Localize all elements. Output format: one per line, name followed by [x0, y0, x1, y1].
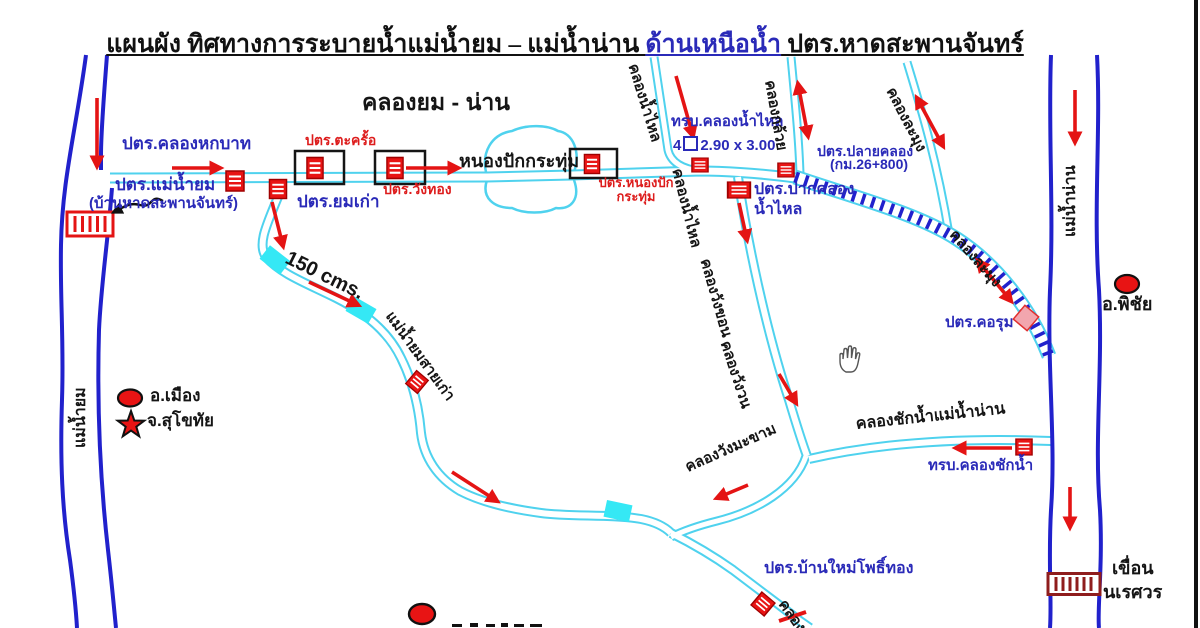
phichai-district-dot: [1115, 275, 1139, 293]
legend-district-dot: [118, 390, 142, 407]
canal-network-diagram[interactable]: แผนผัง ทิศทางการระบายน้ำแม่น้ำยม – แม่น้…: [0, 0, 1200, 628]
map-right-frame-border: [1194, 0, 1198, 628]
label-ptr-nong-pak-line2: กระทุ่ม: [586, 190, 686, 204]
label-ptr-pak-klong-line2: น้ำไหล: [754, 201, 802, 218]
label-ptr-ban-mai-pho-thong: ปตร.บ้านใหม่โพธิ์ทอง: [764, 560, 913, 577]
label-ptr-korum: ปตร.คอรุม: [945, 315, 1013, 331]
klong-yom-nan-heading: คลองยม - น่าน: [362, 90, 510, 115]
culvert-box-icon: [683, 136, 698, 151]
label-ptr-yom-kao: ปตร.ยมเก่า: [297, 193, 380, 211]
yom-dam-icon: [67, 212, 113, 236]
legend-province-star: [118, 411, 145, 436]
title-part1: แผนผัง ทิศทางการระบายน้ำแม่น้ำยม – แม่น้…: [106, 31, 645, 58]
label-ptr-klong-hok-bat: ปตร.คลองหกบาท: [122, 135, 251, 153]
label-nong-pak-kratum-pond: หนองปักกระทุ่ม: [459, 152, 579, 171]
title-upstream-highlight: ด้านเหนือน้ำ: [645, 31, 781, 58]
label-a-phichai: อ.พิชัย: [1102, 295, 1152, 314]
label-ptr-plai-klong-line2: (กม.26+800): [830, 157, 908, 172]
culvert-size: 2.90 x 3.00: [700, 137, 775, 154]
bottom-district-dot: [409, 604, 435, 624]
label-khuean-line1: เขื่อน: [1112, 559, 1154, 578]
title-part3: ปตร.หาดสะพานจันทร์: [781, 31, 1024, 58]
label-culvert-spec: 42.90 x 3.00: [673, 136, 775, 154]
page-title: แผนผัง ทิศทางการระบายน้ำแม่น้ำยม – แม่น้…: [0, 24, 1130, 64]
label-khuean-line2: นเรศวร: [1103, 583, 1162, 602]
label-ptr-mae-nam-yom-sub: (บ้านหาดสะพานจันทร์): [89, 196, 238, 212]
label-ptr-pak-klong-line1: ปตร.ปากคลอง: [754, 181, 854, 198]
hand-cursor-icon: [840, 346, 860, 372]
label-ptr-mae-nam-yom: ปตร.แม่น้ำยม: [115, 176, 215, 194]
label-ptr-wang-thong: ปตร.วังทอง: [383, 182, 452, 197]
diagram-canvas: [0, 0, 1200, 628]
culvert-count: 4: [673, 137, 681, 154]
label-mae-nam-nan: แม่น้ำน่าน: [1062, 165, 1079, 237]
naresuan-dam-icon: [1048, 574, 1100, 595]
legend-district-label: อ.เมือง: [150, 387, 200, 405]
label-trb-klong-chak-nam: ทรบ.คลองชักน้ำ: [928, 458, 1033, 474]
legend-province-label: จ.สุโขทัย: [147, 412, 214, 430]
label-ptr-takro: ปตร.ตะครั้อ: [305, 133, 376, 148]
label-mae-nam-yom: แม่น้ำยม: [72, 387, 89, 448]
clipped-bottom-text-fragment: [452, 623, 542, 627]
